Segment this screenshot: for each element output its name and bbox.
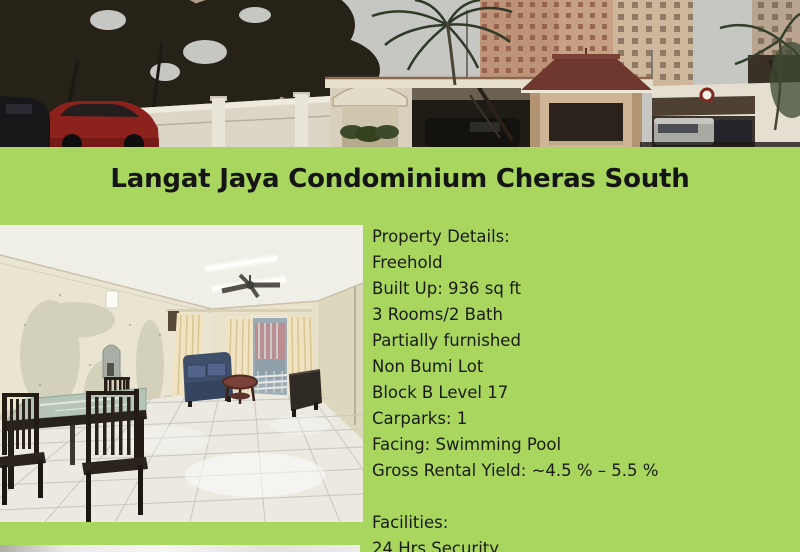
detail-line: Partially furnished (372, 328, 792, 354)
wall-sign (701, 89, 713, 101)
interior-photo-living-room (0, 225, 363, 522)
detail-line: Gross Rental Yield: ~4.5 % – 5.5 % (372, 458, 792, 484)
detail-line: Carparks: 1 (372, 406, 792, 432)
wall-panel (106, 291, 118, 308)
flyer-page: Langat Jaya Condominium Cheras South (0, 0, 800, 552)
bottom-photo-strip (0, 545, 360, 552)
detail-line: Freehold (372, 250, 792, 276)
detail-line: Non Bumi Lot (372, 354, 792, 380)
details-heading: Property Details: (372, 224, 792, 250)
facility-item: 24 Hrs Security (372, 536, 792, 552)
facilities-heading: Facilities: (372, 510, 792, 536)
detail-line: Built Up: 936 sq ft (372, 276, 792, 302)
property-info: Property Details: Freehold Built Up: 936… (372, 224, 792, 552)
page-title: Langat Jaya Condominium Cheras South (0, 162, 800, 196)
facilities-section: Facilities: 24 Hrs Security (372, 510, 792, 552)
hero-photo-condo-entrance (0, 0, 800, 147)
detail-line: 3 Rooms/2 Bath (372, 302, 792, 328)
detail-line: Block B Level 17 (372, 380, 792, 406)
detail-line: Facing: Swimming Pool (372, 432, 792, 458)
